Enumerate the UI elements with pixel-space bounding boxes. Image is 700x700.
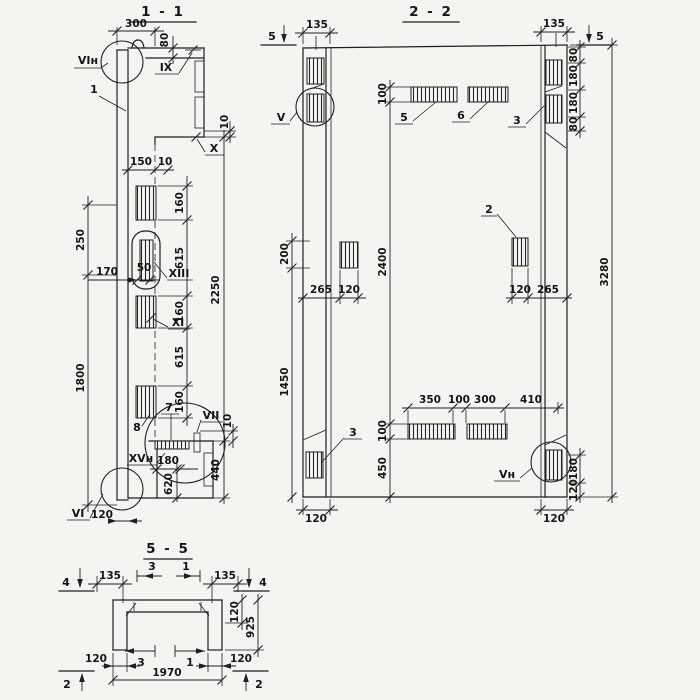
dim-120-bot-left: 120 [305, 513, 327, 525]
detail-circle-vin [101, 41, 143, 83]
callout-2: 2 [485, 203, 493, 216]
dim-150: 150 [130, 156, 152, 168]
dim-265-right: 265 [537, 284, 559, 296]
callout-3-bot: 3 [349, 426, 357, 439]
dim-160a: 160 [174, 192, 186, 214]
engineering-drawing: 1 - 1 [0, 0, 700, 700]
dim-180b: 180 [568, 92, 580, 114]
dim-120-right: 120 [509, 284, 531, 296]
dim-100-top: 100 [377, 83, 389, 105]
section-1-1: 1 - 1 [67, 4, 238, 524]
dim-1450: 1450 [279, 367, 291, 396]
embed-plate [307, 94, 324, 122]
embed-plate [136, 186, 156, 220]
bar-mark-1-top: 1 [182, 560, 190, 573]
cut-mark-5-left: 5 [268, 30, 276, 43]
dim-120-right-chain: 120 [568, 479, 580, 501]
embed-plate [546, 95, 562, 123]
mark-ix: IX [160, 61, 173, 74]
dim-170: 170 [96, 266, 118, 278]
embed-plate-6 [468, 87, 508, 102]
callout-8: 8 [133, 421, 141, 434]
detail-circle-vi [101, 468, 143, 510]
dim-135-left: 135 [306, 19, 328, 31]
dim-2400: 2400 [377, 247, 389, 276]
dim-2250: 2250 [210, 275, 222, 304]
dim-100-bot: 100 [377, 420, 389, 442]
dim-620: 620 [163, 473, 175, 495]
embed-plate [408, 424, 455, 439]
bar-mark-3-bot: 3 [137, 656, 145, 669]
callout-6: 6 [457, 109, 465, 122]
section-5-5: 5 - 5 4 4 2 2 3 [59, 541, 269, 691]
dim-180-bot: 180 [568, 458, 580, 480]
embed-plate [136, 296, 156, 328]
callout-1: 1 [90, 83, 98, 96]
cut-mark-5-right: 5 [596, 30, 604, 43]
embed-plate [306, 452, 323, 478]
dim-160c: 160 [174, 391, 186, 413]
dim-120-bot: 120 [91, 509, 113, 521]
bar-mark-3-top: 3 [148, 560, 156, 573]
callout-5: 5 [400, 111, 408, 124]
dim-1800: 1800 [75, 363, 87, 392]
s55-dimensions: 135 135 120 925 120 120 1970 [85, 570, 264, 686]
dim-135-right: 135 [214, 570, 236, 582]
dim-120-v: 120 [229, 601, 241, 623]
dim-120-bot-right: 120 [230, 653, 252, 665]
embed-plate [307, 58, 324, 84]
dim-300-row: 300 [474, 394, 496, 406]
dim-160b: 160 [174, 301, 186, 323]
dim-615b: 615 [174, 346, 186, 368]
bar-mark-1-bot: 1 [186, 656, 194, 669]
dim-100-row: 100 [448, 394, 470, 406]
dim-10-bot: 10 [222, 414, 234, 429]
cut-mark-2-left: 2 [63, 678, 71, 691]
callout-7: 7 [165, 401, 173, 414]
dim-135-left: 135 [99, 570, 121, 582]
embed-bar [194, 433, 200, 452]
section-2-2: 2 - 2 [261, 4, 618, 525]
embed-plate [340, 242, 358, 268]
embed-plate [136, 386, 156, 418]
dim-1970: 1970 [152, 667, 181, 679]
dim-350: 350 [419, 394, 441, 406]
embed-plate [546, 60, 562, 85]
s55-outline [113, 600, 222, 650]
dim-10: 10 [158, 156, 173, 168]
embed-plate-2 [512, 238, 528, 266]
mark-xvn: XVн [129, 452, 154, 465]
dim-450: 450 [377, 457, 389, 479]
mark-vin: VIн [78, 54, 98, 67]
dim-250: 250 [75, 229, 87, 251]
dim-80: 80 [159, 33, 171, 48]
section-5-5-title: 5 - 5 [146, 541, 190, 557]
dim-135-right: 135 [543, 18, 565, 30]
dim-80a: 80 [568, 48, 580, 63]
embed-plate-7 [155, 441, 189, 449]
mark-v: V [277, 111, 286, 124]
dim-200: 200 [279, 243, 291, 265]
callout-3-top: 3 [513, 114, 521, 127]
dim-180: 180 [157, 455, 179, 467]
cut-mark-4-left: 4 [62, 576, 70, 589]
dim-120-left: 120 [338, 284, 360, 296]
dim-410: 410 [520, 394, 542, 406]
dim-925: 925 [245, 616, 257, 638]
mark-vn: Vн [499, 468, 515, 481]
drawing-sheet: 1 - 1 [0, 0, 700, 700]
dim-440: 440 [210, 459, 222, 481]
dim-50: 50 [137, 262, 152, 274]
cut-mark-4-right: 4 [259, 576, 267, 589]
section-2-2-title: 2 - 2 [409, 4, 453, 20]
dim-300: 300 [125, 18, 147, 30]
embed-plate-5 [411, 87, 457, 102]
s22-embedded-items [306, 58, 562, 480]
dim-120-bot-right: 120 [543, 513, 565, 525]
cut-mark-2-right: 2 [255, 678, 263, 691]
mark-vi: VI [72, 507, 85, 520]
dim-265-left: 265 [310, 284, 332, 296]
embed-plate [546, 450, 562, 480]
dim-120-bot-left: 120 [85, 653, 107, 665]
mark-x: X [210, 142, 219, 155]
dim-10-top: 10 [219, 115, 231, 130]
dim-615a: 615 [174, 247, 186, 269]
mark-vii: VII [203, 409, 220, 422]
dim-80b: 80 [568, 117, 580, 132]
embed-plate [467, 424, 507, 439]
dim-180a: 180 [568, 65, 580, 87]
section-1-1-title: 1 - 1 [141, 4, 185, 20]
dim-3280: 3280 [599, 257, 611, 286]
lifting-loop-bar [140, 240, 153, 281]
